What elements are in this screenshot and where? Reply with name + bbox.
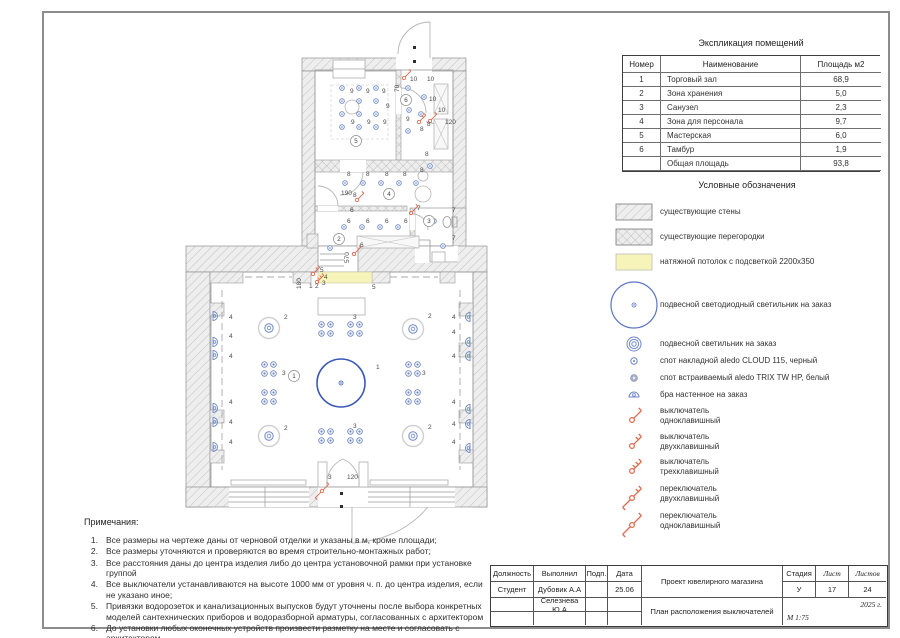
plan-label: 4 (229, 439, 233, 446)
plan-label: 190 (341, 190, 352, 197)
note-number: 2. (84, 546, 98, 556)
legend-item-label: выключатель одноклавишный (660, 406, 720, 426)
tb-stage-box: 2025 г. М 1:75 (783, 598, 886, 625)
tb-author1: Дубовик А.А (534, 582, 586, 598)
plan-label: 9 (367, 119, 371, 126)
plan-label: 7 (417, 205, 421, 212)
note-item: 5.Привязки водорозеток и канализационных… (84, 601, 494, 622)
explication-cell: 93,8 (801, 157, 881, 171)
explication-cell: Зона для персонала (661, 115, 801, 129)
plan-label: 10 (438, 107, 446, 114)
tb-empty (534, 612, 586, 625)
legend-item-label: переключатель двухклавишный (660, 484, 719, 504)
plan-label: 10 (410, 76, 418, 83)
plan-label: 9 (406, 116, 410, 123)
legend-item-label: подвесной светильник на заказ (660, 339, 776, 349)
tb-scale: М 1:75 (787, 613, 809, 622)
explication-cell: 3 (623, 101, 661, 115)
legend-item-label: спот накладной aledo CLOUD 115, черный (660, 356, 817, 366)
plan-label: 6 (366, 218, 370, 225)
plan-label: 4 (452, 421, 456, 428)
psw2-icon (614, 484, 654, 504)
plan-label: 570 (344, 252, 351, 263)
plan-label: 70 (394, 84, 401, 92)
tb-position-value: Студент (491, 582, 534, 598)
explication-title: Экспликация помещений (622, 38, 880, 48)
room-explication: Экспликация помещений НомерНаименованиеП… (622, 38, 880, 172)
plan-label: 3 (353, 423, 357, 430)
tb-label-made-by: Выполнил (534, 566, 586, 582)
ceiling-icon (614, 252, 654, 272)
tb-stage-value: У (783, 582, 816, 598)
note-text: До установки любых оконечных устройств п… (106, 623, 494, 638)
legend-item-label: натяжной потолок с подсветкой 2200х350 (660, 257, 814, 267)
plan-label: 4 (229, 333, 233, 340)
plan-label: 4 (452, 439, 456, 446)
plan-label: 8 (385, 171, 389, 178)
note-text: Все размеры уточняются и проверяются во … (106, 546, 431, 556)
explication-cell: Санузел (661, 101, 801, 115)
plan-label: 120 (445, 119, 456, 126)
plan-label: 120 (347, 474, 358, 481)
legend-item: выключатель трехклавишный (608, 455, 719, 479)
tb-label-sheet: Лист (816, 566, 849, 582)
plan-label: 4 (452, 399, 456, 406)
psw1-icon (614, 511, 654, 531)
plan-label: 8 (425, 151, 429, 158)
drawing-sheet: 1234569999999101010107012088981908888886… (0, 0, 900, 638)
note-number: 5. (84, 601, 98, 622)
sw3-icon (614, 457, 654, 477)
plan-label: 9 (386, 103, 390, 110)
plan-label: 7 (452, 207, 456, 214)
plan-label: 10 (427, 76, 435, 83)
note-text: Все размеры на чертеже даны от черновой … (106, 535, 437, 545)
tb-label-date: Дата (608, 566, 642, 582)
plan-label: 8 (427, 121, 431, 128)
legend-item-label: выключатель трехклавишный (660, 457, 719, 477)
note-number: 3. (84, 558, 98, 579)
svg-text:6: 6 (404, 97, 408, 104)
explication-header-cell: Площадь м2 (801, 56, 881, 73)
explication-cell: 5,0 (801, 87, 881, 101)
explication-cell: Тамбур (661, 143, 801, 157)
tb-empty (586, 612, 608, 625)
plan-label: 6 (360, 242, 364, 249)
plan-label: 8 (420, 167, 424, 174)
note-item: 6.До установки любых оконечных устройств… (84, 623, 494, 638)
tb-label-position: Должность (491, 566, 534, 582)
plan-label: 2 (284, 314, 288, 321)
floor-plan: 1234569999999101010107012088981908888886… (180, 0, 500, 560)
note-item: 4.Все выключатели устанавливаются на выс… (84, 579, 494, 600)
legend: Условные обозначения существующие стеныс… (608, 180, 886, 190)
legend-item-label: существующие стены (660, 207, 741, 217)
title-block: Должность Выполнил Подп. Дата Проект юве… (490, 565, 888, 627)
plan-symbols: 1234569999999101010107012088981908888886… (213, 69, 470, 499)
plan-label: 10 (429, 96, 437, 103)
plan-label: 4 (229, 314, 233, 321)
plan-label: 180 (296, 278, 303, 289)
plan-label: 4 (452, 353, 456, 360)
legend-item: переключатель одноклавишный (608, 509, 720, 533)
ceiling-strip-row (210, 272, 455, 283)
legend-title: Условные обозначения (608, 180, 886, 190)
note-number: 1. (84, 535, 98, 545)
legend-item: выключатель двухклавишный (608, 430, 719, 454)
plan-label: 9 (383, 119, 387, 126)
plan-label: 6 (347, 218, 351, 225)
legend-item: натяжной потолок с подсветкой 2200х350 (608, 253, 814, 271)
plan-label: 2 (428, 313, 432, 320)
bra-icon (614, 385, 654, 405)
note-text: Все расстояния даны до центра изделия ли… (106, 558, 494, 579)
plan-label: 3 (353, 314, 357, 321)
legend-item: переключатель двухклавишный (608, 482, 719, 506)
tb-author2: Селезнева Ю.А (534, 598, 586, 612)
plan-label: 6 (385, 218, 389, 225)
plan-label: 4 (229, 419, 233, 426)
plan-label: 8 (420, 126, 424, 133)
explication-table: НомерНаименованиеПлощадь м21Торговый зал… (622, 55, 880, 172)
explication-header-cell: Номер (623, 56, 661, 73)
note-number: 4. (84, 579, 98, 600)
legend-item-label: существующие перегородки (660, 232, 765, 242)
explication-cell: 5 (623, 129, 661, 143)
plan-label: 4 (452, 329, 456, 336)
note-text: Все выключатели устанавливаются на высот… (106, 579, 494, 600)
tb-sheet-no: 17 (816, 582, 849, 598)
svg-text:3: 3 (427, 218, 431, 225)
explication-cell: 6,0 (801, 129, 881, 143)
explication-cell: Общая площадь (661, 157, 801, 171)
legend-item: существующие стены (608, 203, 741, 221)
tb-sign1 (586, 582, 608, 598)
bigpendant-icon (608, 279, 660, 331)
plan-label: 8 (353, 192, 357, 199)
plan-label: 4 (229, 399, 233, 406)
plan-label: 8 (347, 171, 351, 178)
legend-item: спот встраиваемый aledo TRIX TW HP, белы… (608, 370, 829, 386)
sw2-icon (614, 432, 654, 452)
sw1-icon (614, 406, 654, 426)
explication-cell: 1 (623, 73, 661, 87)
plan-label: 4 (229, 353, 233, 360)
explication-cell: 2 (623, 87, 661, 101)
tb-date1: 25.06 (608, 582, 642, 598)
note-item: 2.Все размеры уточняются и проверяются в… (84, 546, 494, 556)
plan-label: 5 (372, 284, 376, 291)
notes-title: Примечания: (84, 517, 494, 527)
explication-cell: 2,3 (801, 101, 881, 115)
plan-label: 3 (322, 280, 326, 287)
tb-empty (491, 612, 534, 625)
plan-label: 1 (309, 283, 313, 290)
cross-icon (614, 227, 654, 247)
plan-label: 3 (282, 370, 286, 377)
svg-text:4: 4 (387, 191, 391, 198)
explication-cell: Торговый зал (661, 73, 801, 87)
explication-cell: 6 (623, 143, 661, 157)
legend-item-label: спот встраиваемый aledo TRIX TW HP, белы… (660, 373, 829, 383)
legend-item-label: выключатель двухклавишный (660, 432, 719, 452)
plan-label: 2 (284, 425, 288, 432)
plan-label: 8 (403, 171, 407, 178)
plan-label: 2 (315, 283, 319, 290)
tb-sheets-total: 24 (849, 582, 886, 598)
legend-item-label: подвесной светодиодный светильник на зак… (660, 300, 831, 310)
explication-cell: 1,9 (801, 143, 881, 157)
plan-label: 3 (328, 474, 332, 481)
tb-drawing-name: План расположения выключателей (642, 598, 783, 625)
tb-label-stage: Стадия (783, 566, 816, 582)
explication-cell: 68,9 (801, 73, 881, 87)
legend-item: подвесной светодиодный светильник на зак… (608, 279, 831, 331)
plan-label: 4 (452, 314, 456, 321)
plan-label: 6 (404, 218, 408, 225)
tb-project-name: Проект ювелирного магазина (642, 566, 783, 598)
note-item: 1.Все размеры на чертеже даны от черново… (84, 535, 494, 545)
plan-label: 3 (422, 370, 426, 377)
plan-label: 9 (350, 88, 354, 95)
explication-cell: Мастерская (661, 129, 801, 143)
svg-text:2: 2 (337, 236, 341, 243)
tb-empty (586, 598, 608, 612)
plan-label: 5 (320, 267, 324, 274)
note-number: 6. (84, 623, 98, 638)
svg-text:1: 1 (292, 373, 296, 380)
legend-item: бра настенное на заказ (608, 387, 747, 403)
note-text: Привязки водорозеток и канализационных в… (106, 601, 494, 622)
legend-item: подвесной светильник на заказ (608, 336, 776, 352)
plan-label: 1 (376, 364, 380, 371)
explication-cell: 9,7 (801, 115, 881, 129)
legend-item: существующие перегородки (608, 228, 765, 246)
svg-text:5: 5 (354, 138, 358, 145)
notes: Примечания: 1.Все размеры на чертеже дан… (84, 517, 494, 638)
tb-empty (608, 598, 642, 612)
plan-label: 8 (366, 171, 370, 178)
plan-label: 6 (350, 207, 354, 214)
hatch-icon (614, 202, 654, 222)
legend-item-label: бра настенное на заказ (660, 390, 747, 400)
plan-label: 2 (428, 424, 432, 431)
plan-label: 9 (366, 88, 370, 95)
tb-label-sign: Подп. (586, 566, 608, 582)
explication-header-cell: Наименование (661, 56, 801, 73)
explication-cell: Зона хранения (661, 87, 801, 101)
tb-year: 2025 г. (860, 600, 882, 609)
explication-cell (623, 157, 661, 171)
plan-label: 9 (382, 88, 386, 95)
plan-label: 7 (452, 235, 456, 242)
legend-item-label: переключатель одноклавишный (660, 511, 720, 531)
plan-label: 9 (351, 119, 355, 126)
tb-label-sheets: Листов (849, 566, 886, 582)
legend-item: спот накладной aledo CLOUD 115, черный (608, 353, 817, 369)
tb-empty (608, 612, 642, 625)
explication-cell: 4 (623, 115, 661, 129)
note-item: 3.Все расстояния даны до центра изделия … (84, 558, 494, 579)
tb-empty (491, 598, 534, 612)
legend-item: выключатель одноклавишный (608, 404, 720, 428)
